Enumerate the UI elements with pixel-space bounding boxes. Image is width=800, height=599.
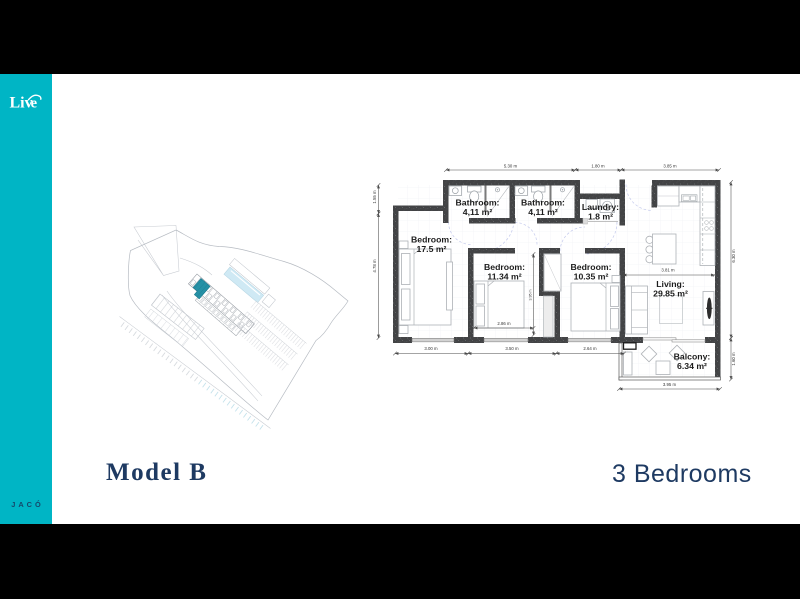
- svg-text:1.60 m: 1.60 m: [731, 352, 736, 366]
- svg-text:Laundry:: Laundry:: [582, 202, 619, 212]
- svg-text:6.34 m²: 6.34 m²: [677, 361, 707, 371]
- svg-text:4.78 m: 4.78 m: [372, 259, 377, 273]
- svg-text:Liv: Liv: [10, 94, 33, 111]
- svg-text:4,11 m²: 4,11 m²: [463, 207, 493, 217]
- svg-text:11.34 m²: 11.34 m²: [487, 272, 521, 282]
- svg-text:Bedroom:: Bedroom:: [484, 262, 525, 272]
- svg-text:Bathroom:: Bathroom:: [521, 198, 565, 208]
- svg-text:29.85 m²: 29.85 m²: [653, 289, 688, 299]
- svg-text:3.95 m: 3.95 m: [663, 382, 677, 387]
- svg-text:Bathroom:: Bathroom:: [456, 198, 500, 208]
- svg-text:3.50 m: 3.50 m: [505, 346, 519, 351]
- svg-text:Bedroom:: Bedroom:: [411, 235, 452, 245]
- svg-text:5.30 m: 5.30 m: [504, 163, 518, 168]
- svg-text:3.00 m: 3.00 m: [424, 346, 438, 351]
- svg-text:6.30 m: 6.30 m: [731, 249, 736, 263]
- svg-text:2.64 m: 2.64 m: [583, 346, 597, 351]
- svg-text:10.35 m²: 10.35 m²: [574, 272, 609, 282]
- svg-text:1.80 m: 1.80 m: [591, 163, 605, 168]
- svg-text:17.5 m²: 17.5 m²: [417, 244, 447, 254]
- svg-text:2.86 m: 2.86 m: [497, 321, 511, 326]
- svg-text:3.81 m: 3.81 m: [661, 268, 675, 273]
- svg-text:Balcony:: Balcony:: [674, 352, 711, 362]
- svg-text:e: e: [31, 95, 38, 111]
- svg-text:3.95 m: 3.95 m: [529, 290, 533, 301]
- svg-text:1.8 m²: 1.8 m²: [588, 212, 613, 222]
- svg-text:4,11 m²: 4,11 m²: [528, 207, 558, 217]
- svg-text:Living:: Living:: [656, 279, 685, 289]
- svg-text:Bedroom:: Bedroom:: [570, 262, 611, 272]
- svg-text:1.55 m: 1.55 m: [372, 190, 377, 204]
- svg-text:3.85 m: 3.85 m: [663, 163, 677, 168]
